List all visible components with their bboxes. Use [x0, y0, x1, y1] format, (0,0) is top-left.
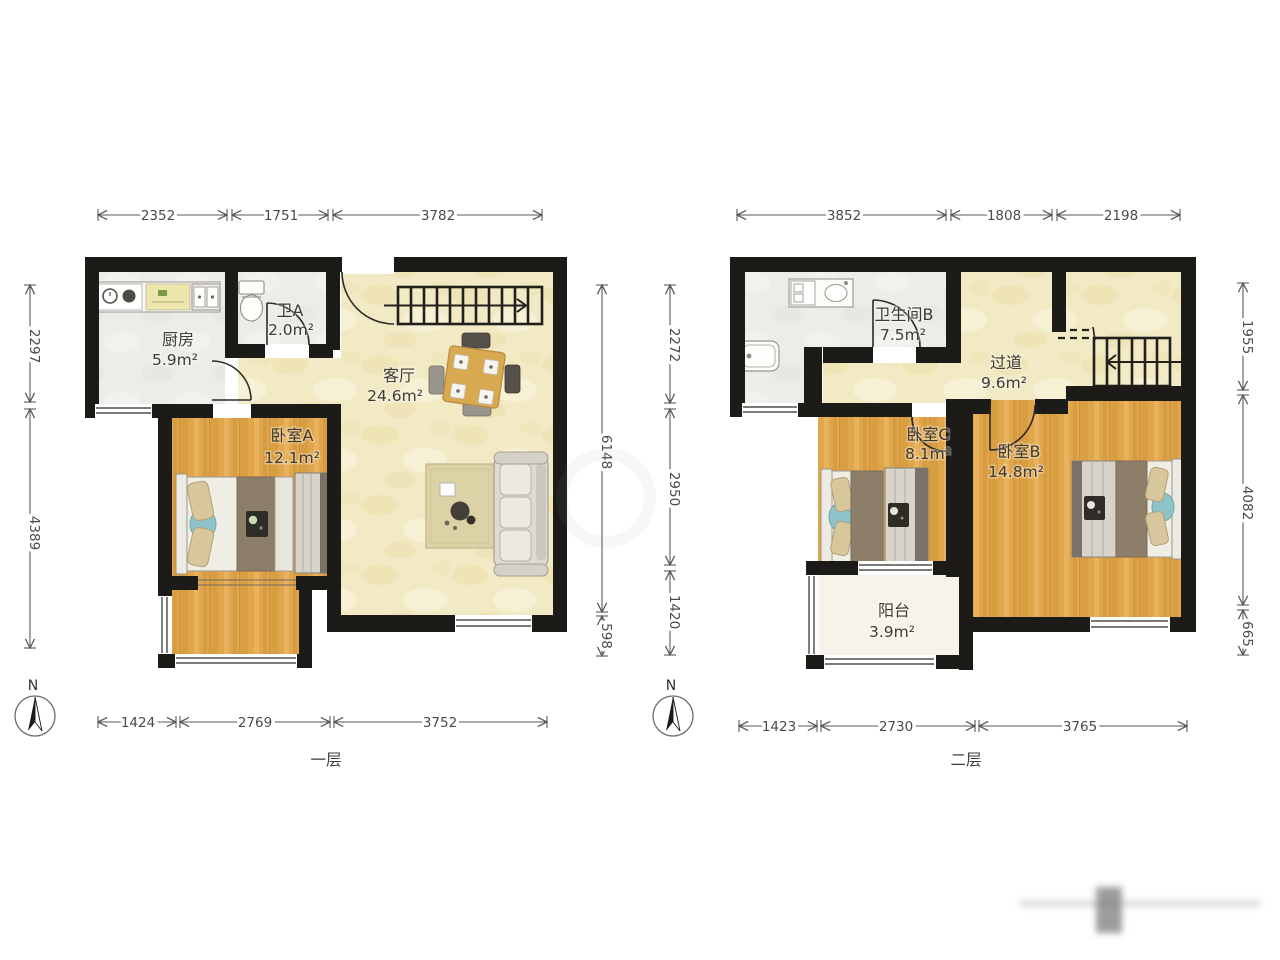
bedroom-c-area: 8.1m²	[905, 445, 951, 463]
window	[158, 596, 172, 654]
wardrobe-c	[885, 468, 928, 564]
dim-f2-bottom-2: 3765	[1063, 719, 1097, 735]
balcony-area: 3.9m²	[869, 623, 915, 641]
hallway-area: 9.6m²	[981, 374, 1027, 392]
dim-f1-bottom-2: 3752	[423, 715, 457, 731]
bedroom-a-area: 12.1m²	[264, 449, 320, 467]
dim-f2-right-0: 1955	[1239, 320, 1255, 354]
dining-chair	[505, 365, 520, 393]
dim-f1-left-1: 4389	[26, 516, 42, 550]
dim-f2-bottom-1: 2730	[879, 719, 913, 735]
hall1-floor	[238, 358, 353, 404]
wardrobe-b	[1072, 461, 1116, 557]
sofa	[494, 452, 548, 576]
dim-f1-top-0: 2352	[141, 208, 175, 224]
dim-f1-left-0: 2297	[26, 329, 42, 363]
north-letter: N	[666, 678, 676, 694]
balcony-glass-left	[806, 575, 819, 655]
dining-chair	[429, 366, 444, 394]
bedroom-b-label: 卧室B	[998, 442, 1041, 461]
bed-a	[176, 474, 293, 574]
dim-f1-right-1: 598	[598, 623, 614, 649]
living-area: 24.6m²	[367, 387, 423, 405]
dim-f2-top-0: 3852	[827, 208, 861, 224]
dim-f2-right-2: 665	[1239, 621, 1255, 647]
dim-f1-top-1: 1751	[264, 208, 298, 224]
kitchen-area: 5.9m²	[152, 351, 198, 369]
bath-a-label: 卫A	[277, 301, 304, 320]
dining-table	[442, 345, 505, 408]
dim-f1-top-2: 3782	[421, 208, 455, 224]
bedroom-b-area: 14.8m²	[988, 463, 1044, 481]
hallway-label: 过道	[990, 353, 1022, 372]
coffee-table-rug	[426, 464, 494, 548]
hall2-floor-a	[823, 363, 946, 403]
bed-b	[1116, 459, 1183, 559]
bath-b-label: 卫生间B	[875, 305, 934, 324]
dim-f2-top-1: 1808	[987, 208, 1021, 224]
north-letter: N	[28, 678, 38, 694]
bed-c	[821, 469, 883, 565]
dim-f2-top-2: 2198	[1104, 208, 1138, 224]
basin	[825, 285, 847, 302]
balcony-label: 阳台	[878, 601, 910, 620]
window	[175, 654, 297, 668]
counter-board	[146, 284, 190, 310]
dim-f1-bottom-0: 1424	[121, 715, 155, 731]
living-label: 客厅	[383, 366, 415, 385]
dining-chair	[462, 333, 490, 348]
wardrobe-a	[295, 473, 328, 573]
bath-b-area: 7.5m²	[880, 326, 926, 344]
dim-f2-bottom-0: 1423	[762, 719, 796, 735]
window	[95, 404, 152, 418]
tv	[246, 511, 268, 537]
blanket	[851, 471, 883, 563]
washer-sink-unit	[789, 279, 853, 307]
floor1-title: 一层	[310, 751, 341, 769]
dim-f1-bottom-1: 2769	[238, 715, 272, 731]
tv	[1084, 496, 1105, 520]
dim-f2-left-1: 2950	[666, 472, 682, 506]
window	[858, 561, 933, 575]
kitchen-counter	[96, 282, 220, 312]
floorplan-image: 厨房 5.9m² 卫A 2.0m² 客厅 24.6m² 卧室A 12.1m² 2…	[0, 0, 1280, 960]
kettle	[451, 502, 470, 521]
window	[1090, 617, 1170, 632]
bedroom-a-label: 卧室A	[271, 426, 314, 445]
blanket	[1116, 461, 1147, 557]
toilet	[239, 281, 264, 321]
window	[455, 615, 532, 632]
floorplan-page: 厨房 5.9m² 卫A 2.0m² 客厅 24.6m² 卧室A 12.1m² 2…	[0, 0, 1280, 960]
window	[742, 403, 798, 417]
bedroom-c-label: 卧室C	[906, 425, 949, 444]
dim-f2-right-1: 4082	[1239, 486, 1255, 520]
dim-f2-left-2: 1420	[666, 595, 682, 629]
tv	[888, 503, 909, 527]
window	[824, 655, 936, 669]
dim-f2-left-0: 2272	[666, 328, 682, 362]
kitchen-label: 厨房	[162, 330, 194, 349]
bath-a-area: 2.0m²	[268, 321, 314, 339]
floor2-title: 二层	[950, 751, 981, 769]
